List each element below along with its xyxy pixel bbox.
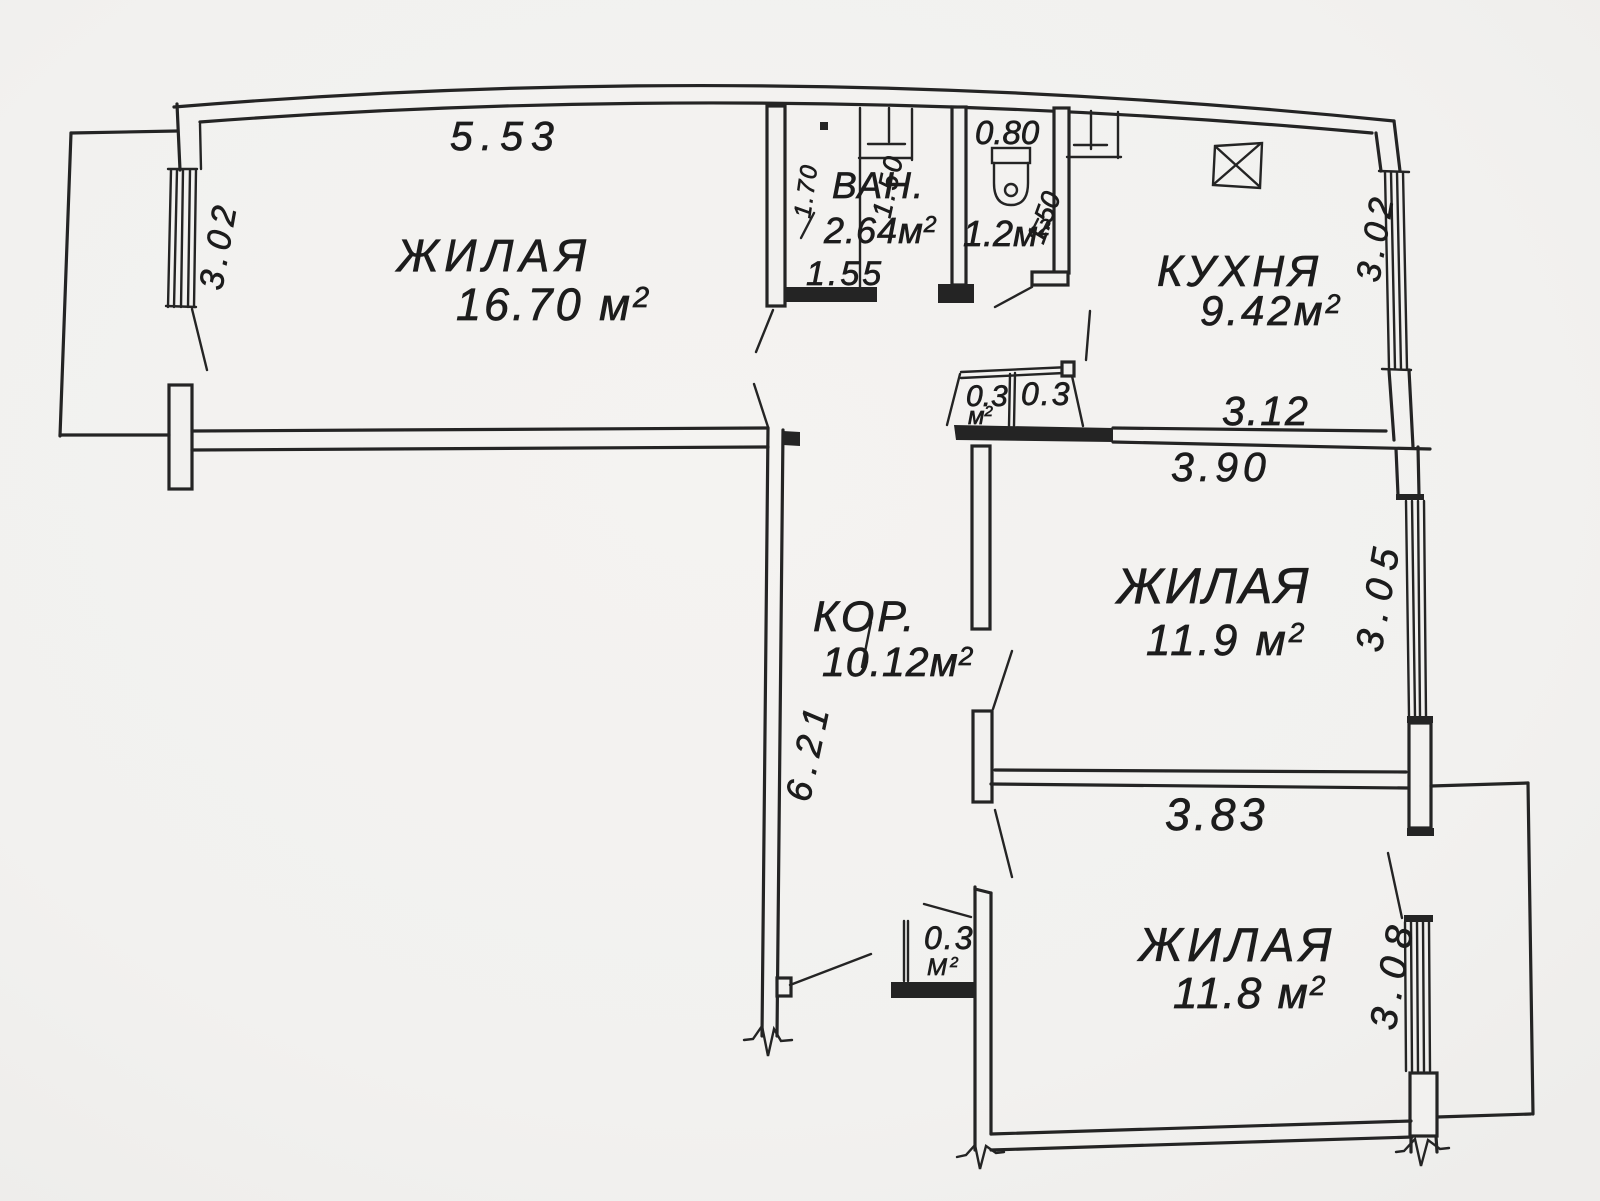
svg-text:1.55: 1.55: [806, 255, 884, 293]
svg-text:11.9 м2: 11.9 м2: [1146, 616, 1307, 665]
svg-text:11.8 м2: 11.8 м2: [1173, 969, 1327, 1018]
svg-text:0.3: 0.3: [1021, 376, 1071, 412]
svg-text:КОР.: КОР.: [813, 593, 917, 641]
svg-text:5.53: 5.53: [450, 113, 562, 159]
svg-text:3.12: 3.12: [1222, 388, 1310, 434]
svg-text:9.42м2: 9.42м2: [1200, 287, 1344, 334]
svg-text:0.3: 0.3: [924, 920, 974, 956]
svg-text:0.80: 0.80: [975, 114, 1040, 151]
svg-text:ЖИЛАЯ: ЖИЛАЯ: [1137, 918, 1336, 971]
svg-text:3.90: 3.90: [1171, 444, 1271, 490]
svg-text:ЖИЛАЯ: ЖИЛАЯ: [1114, 558, 1310, 614]
svg-text:3.83: 3.83: [1165, 789, 1269, 840]
svg-text:10.12м2: 10.12м2: [822, 639, 974, 685]
svg-text:ЖИЛАЯ: ЖИЛАЯ: [395, 230, 592, 281]
svg-text:16.70 м2: 16.70 м2: [456, 279, 652, 330]
